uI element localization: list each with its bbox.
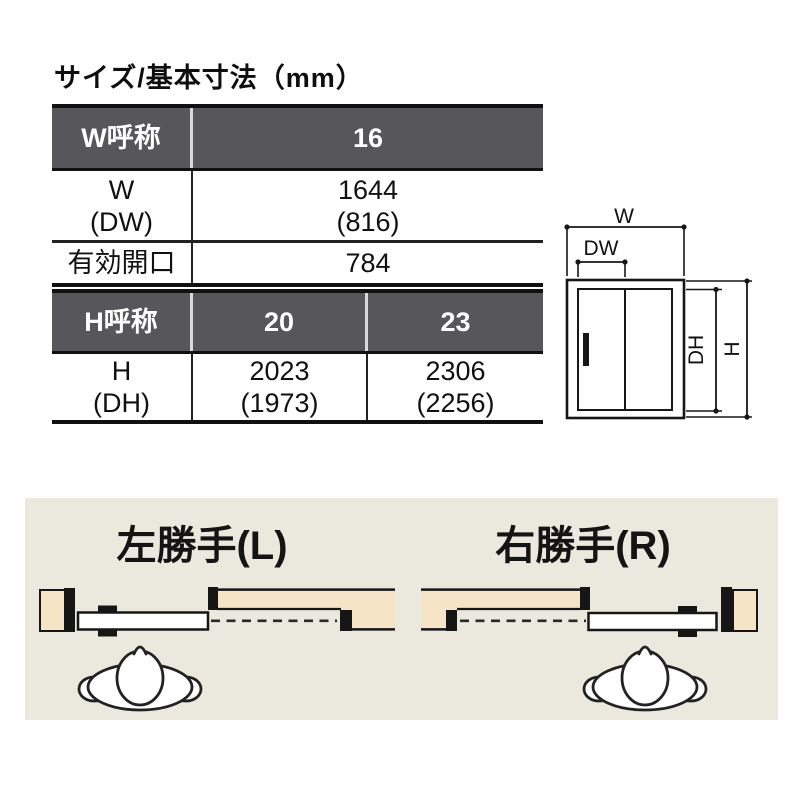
label-line: W — [109, 174, 134, 206]
table-w-header-value: 16 — [193, 108, 543, 168]
door-jamb — [721, 587, 732, 632]
table-w-row2-label: 有効開口 — [52, 243, 193, 283]
table-w: W呼称 16 W (DW) 1644 (816) 有効開口 784 — [52, 104, 543, 287]
value-line: 2023 — [249, 355, 309, 387]
door-elevation-diagram: W DW DH H — [540, 195, 780, 430]
door-jamb — [64, 588, 75, 632]
value-line: 2306 — [425, 355, 485, 387]
page-title: サイズ/基本寸法（mm） — [54, 56, 364, 95]
receiving-jamb — [446, 610, 457, 631]
door-handle — [678, 630, 697, 638]
person-top-view-icon — [584, 647, 706, 710]
table-row: 有効開口 784 — [52, 243, 543, 287]
door-handle — [98, 629, 117, 637]
left-handing-diagram: 左勝手(L) — [40, 524, 395, 710]
spec-sheet: サイズ/基本寸法（mm） W呼称 16 W (DW) 1644 (816) 有効… — [0, 0, 800, 800]
right-handing-diagram: 右勝手(R) — [421, 524, 757, 710]
door-front-view — [567, 280, 684, 418]
dim-label-h: H — [721, 341, 744, 356]
table-w-row1-label: W (DW) — [52, 171, 193, 240]
handing-panel: 左勝手(L) 右勝手(R) — [25, 498, 778, 720]
value-line: 1644 — [338, 174, 398, 206]
label-line: H — [112, 355, 132, 387]
table-h-header-col1: 20 — [193, 293, 368, 351]
door-handle — [583, 333, 589, 366]
label-line: (DW) — [90, 206, 153, 238]
sliding-door-left — [78, 613, 208, 630]
door-jamb — [580, 587, 590, 610]
table-w-header: W呼称 16 — [52, 104, 543, 171]
table-w-row2-value: 784 — [193, 243, 543, 283]
dim-label-dh: DH — [685, 335, 708, 365]
label-line: (DH) — [93, 387, 150, 419]
value-line: (2256) — [416, 387, 494, 419]
table-h-row-label: H (DH) — [52, 354, 193, 420]
table-h-row-col1: 2023 (1973) — [193, 354, 368, 420]
door-handle — [98, 606, 117, 614]
table-w-row1-value: 1644 (816) — [193, 171, 543, 240]
door-jamb — [208, 587, 218, 610]
sliding-door-right — [589, 613, 717, 630]
table-h-row-col2: 2306 (2256) — [368, 354, 543, 420]
right-handing-title: 右勝手(R) — [495, 524, 671, 568]
person-top-view-icon — [79, 647, 201, 710]
value-line: (816) — [336, 206, 399, 238]
receiving-jamb — [340, 610, 352, 631]
table-row: W (DW) 1644 (816) — [52, 171, 543, 243]
table-h: H呼称 20 23 H (DH) 2023 (1973) 2306 (2256) — [52, 289, 543, 424]
table-w-header-label: W呼称 — [52, 108, 193, 168]
wall-segment — [40, 590, 65, 631]
dim-label-w: W — [614, 205, 634, 228]
table-row: H (DH) 2023 (1973) 2306 (2256) — [52, 354, 543, 424]
door-handle — [678, 606, 697, 614]
table-h-header-label: H呼称 — [52, 293, 193, 351]
value-line: (1973) — [240, 387, 318, 419]
dim-label-dw: DW — [584, 237, 619, 260]
left-handing-title: 左勝手(L) — [116, 524, 287, 568]
wall-segment — [733, 590, 757, 631]
table-h-header: H呼称 20 23 — [52, 289, 543, 354]
table-h-header-col2: 23 — [368, 293, 543, 351]
